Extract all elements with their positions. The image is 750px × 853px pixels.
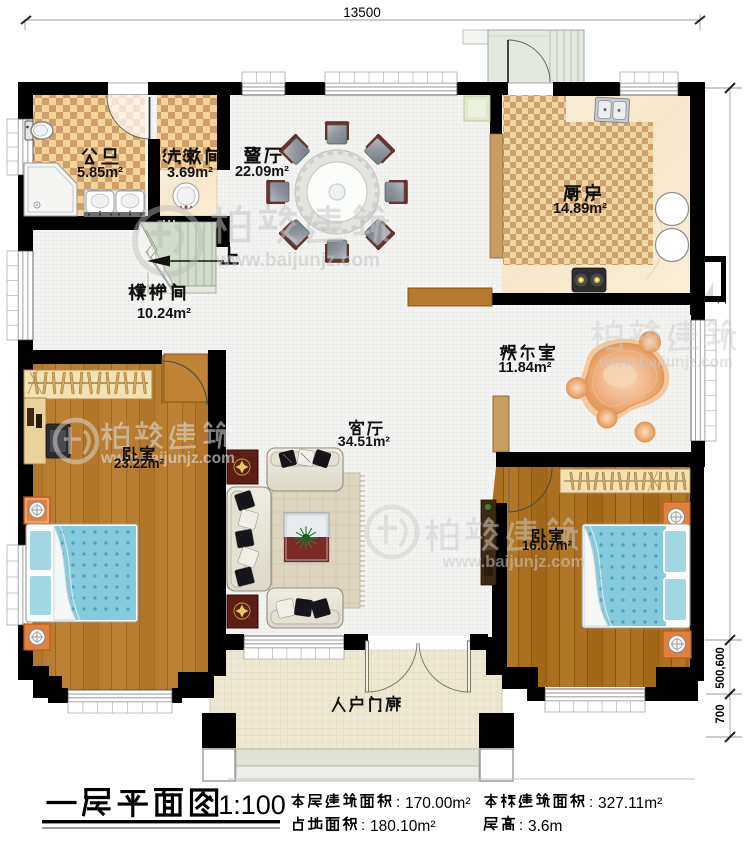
svg-text:www.baijunjz.com: www.baijunjz.com (215, 250, 380, 271)
svg-text::: : (396, 794, 400, 811)
svg-text:3.69m²: 3.69m² (167, 165, 213, 181)
svg-text:180.10m²: 180.10m² (370, 818, 435, 835)
svg-text:1:100: 1:100 (218, 790, 286, 820)
svg-text:www.baijunjz.com: www.baijunjz.com (598, 354, 733, 371)
svg-text:22.09m²: 22.09m² (235, 164, 289, 180)
svg-text:11.84m²: 11.84m² (498, 360, 551, 376)
svg-text:327.11m²: 327.11m² (598, 795, 662, 812)
svg-text::: : (589, 794, 593, 811)
svg-text:500,600: 500,600 (715, 647, 727, 689)
svg-text:13500: 13500 (343, 5, 381, 20)
svg-text::: : (361, 817, 365, 834)
svg-text:3.6m: 3.6m (528, 818, 562, 835)
svg-text:www.baijunjz.com: www.baijunjz.com (442, 553, 585, 571)
svg-text:170.00m²: 170.00m² (405, 795, 470, 812)
svg-text:16.07m²: 16.07m² (522, 538, 573, 553)
svg-text::: : (519, 817, 523, 834)
svg-text:34.51m²: 34.51m² (338, 433, 390, 449)
svg-text:10.24m²: 10.24m² (137, 306, 191, 322)
svg-text:700: 700 (715, 704, 727, 723)
svg-text:23.22m²: 23.22m² (114, 456, 165, 471)
svg-text:14.89m²: 14.89m² (553, 201, 607, 217)
svg-text:5.85m²: 5.85m² (77, 165, 123, 181)
